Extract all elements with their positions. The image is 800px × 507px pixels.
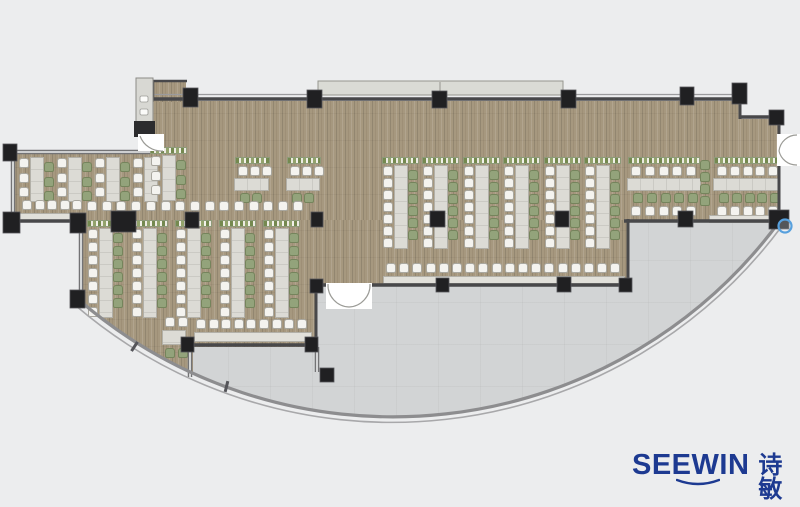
column [557,277,571,292]
column [678,211,693,227]
floorplan-canvas: SEEWIN 诗敏 [0,0,800,507]
curtain-wall-curve [79,222,779,417]
column [320,368,334,382]
column [432,91,447,108]
blue-marker [779,220,792,233]
column [555,211,569,227]
column [680,87,694,105]
brand-cjk-text: 诗敏 [758,454,800,502]
column [436,278,449,292]
column [769,110,784,125]
column [305,337,318,352]
column [310,279,323,293]
column [183,88,198,107]
column [3,144,17,161]
door-south [326,283,372,309]
column [732,83,747,104]
column [185,212,199,228]
door-right [777,134,800,166]
shaft-panel [140,96,148,102]
column [111,211,136,232]
shaft-panel [140,109,148,115]
column [307,90,322,108]
column [3,212,20,233]
column [181,337,194,352]
column [70,213,86,233]
column [619,278,632,292]
column [311,212,323,227]
brand-swoosh-icon [676,478,720,488]
brand-logo: SEEWIN 诗敏 [632,451,800,502]
column [561,90,576,108]
column [430,211,445,227]
brand-wordmark: SEEWIN [632,451,749,480]
brand-wordmark-text: SEEWIN [632,449,749,481]
plan-linework [0,0,800,507]
column [70,290,85,308]
